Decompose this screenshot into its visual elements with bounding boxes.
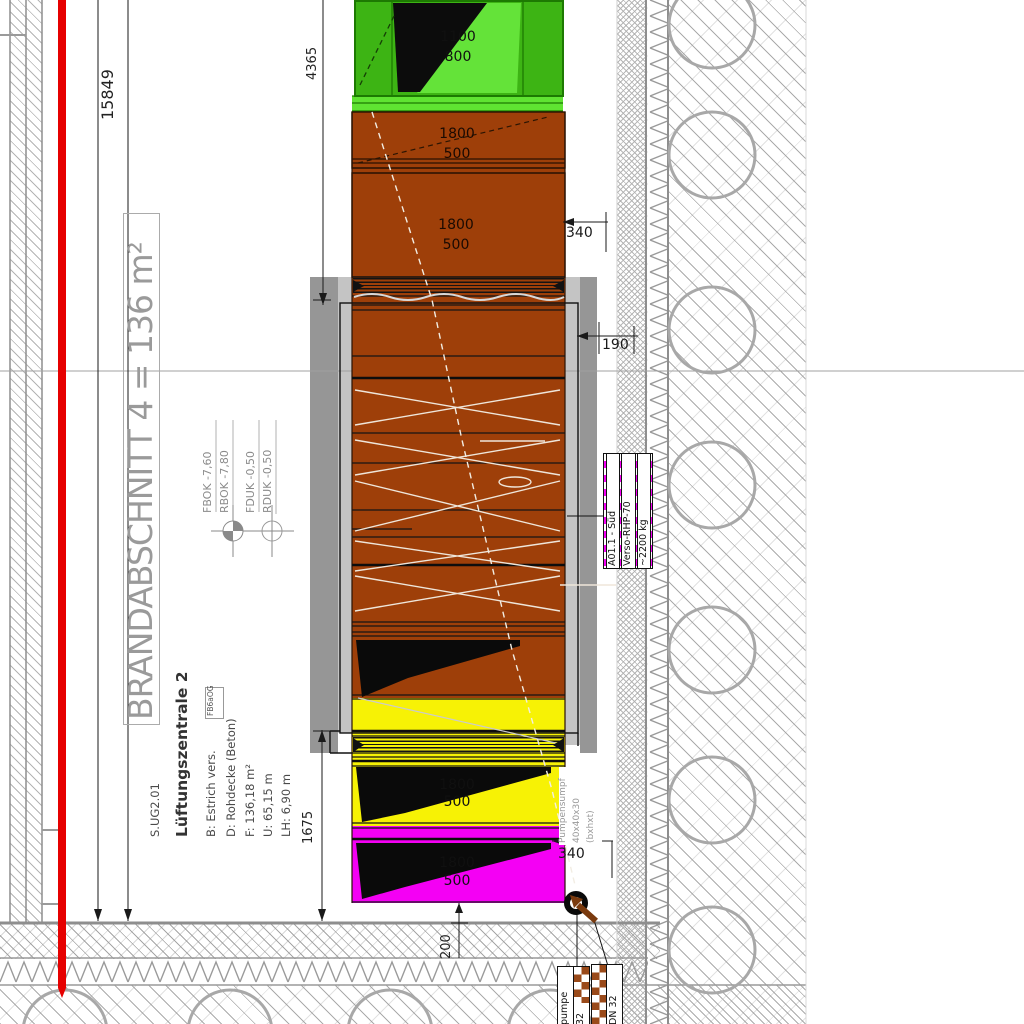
duct-green-width: 1100 xyxy=(430,29,486,45)
unit-tag: A01.1 - Süd Verso-RHP-70 ~2200 kg xyxy=(603,453,653,569)
room-perimeter-line: U: 65,15 m xyxy=(263,760,278,837)
drain-tag: DN 32 xyxy=(591,964,623,1024)
room-height-line: LH: 6,90 m xyxy=(281,760,296,837)
duct-brown-mid-width: 1800 xyxy=(428,217,484,233)
level-text-fduk: FDUK -0,50 xyxy=(245,417,259,513)
duct-brown-mid-height: 500 xyxy=(428,237,484,253)
dimension-arrows xyxy=(94,218,588,921)
dim-wall-gap: 190 xyxy=(602,337,638,353)
unit-tag-line1: A01.1 - Süd xyxy=(608,456,619,566)
duct-magenta-width: 1800 xyxy=(429,855,485,871)
duct-yellow-width: 1800 xyxy=(429,777,485,793)
level-text-rbok: RBOK -7,80 xyxy=(219,417,233,513)
room-floor-tag: FB6aOG xyxy=(207,689,221,716)
pump-tag-number: 32 xyxy=(576,1003,588,1024)
fire-section-label: BRANDABSCHNITT 4 = 136 m² xyxy=(124,216,157,720)
duct-brown-upper-height: 500 xyxy=(429,146,485,162)
room-area-line: F: 136,18 m² xyxy=(245,752,260,837)
pump-note: Pumpensumpf 40x40x30 (bxhxt) xyxy=(559,767,602,845)
room-name: Lüftungszentrale 2 xyxy=(175,640,193,837)
room-id: S.UG2.01 xyxy=(150,757,165,837)
unit-tag-line2: Verso-RHP-70 xyxy=(623,456,634,566)
bracing-lines xyxy=(355,390,616,611)
pump-note-line2: 40x40x30 xyxy=(573,769,587,843)
fire-compartment-line xyxy=(58,0,66,998)
duct-green-height: 800 xyxy=(430,49,486,65)
flow-wedge-magenta xyxy=(356,843,551,899)
dim-duct-top: 340 xyxy=(566,225,600,241)
level-text-rduk: RDUK -0,50 xyxy=(262,417,276,513)
room-floor-line: B: Estrich vers. xyxy=(206,720,221,837)
cad-floorplan-view: BRANDABSCHNITT 4 = 136 m² S.UG2.01 Lüftu… xyxy=(0,0,1024,1024)
dim-bottom-left: 1675 xyxy=(302,806,318,844)
unit-tag-line3: ~2200 kg xyxy=(639,456,650,566)
drain-tag-text: DN 32 xyxy=(609,965,621,1024)
dim-total: 15849 xyxy=(100,8,122,120)
dim-top: 4365 xyxy=(306,30,322,80)
duct-brown-upper-width: 1800 xyxy=(429,126,485,142)
duct-magenta-height: 500 xyxy=(429,873,485,889)
flow-wedge-brown xyxy=(356,640,520,697)
pump-tag-text: pumpe xyxy=(560,967,572,1024)
duct-yellow-height: 500 xyxy=(429,794,485,810)
pump-symbol-icon xyxy=(567,894,608,968)
dim-sump: 200 xyxy=(440,921,456,959)
fire-section-box: BRANDABSCHNITT 4 = 136 m² xyxy=(123,213,160,725)
pump-tag: pumpe 32 xyxy=(557,966,590,1024)
dim-duct-bottom: 340 xyxy=(558,846,592,862)
level-text-fbok: FBOK -7,60 xyxy=(202,417,216,513)
pump-note-line3: (bxhxt) xyxy=(587,769,601,843)
room-ceiling-line: D: Rohdecke (Beton) xyxy=(226,712,241,837)
room-floor-tag-box: FB6aOG xyxy=(205,687,224,719)
